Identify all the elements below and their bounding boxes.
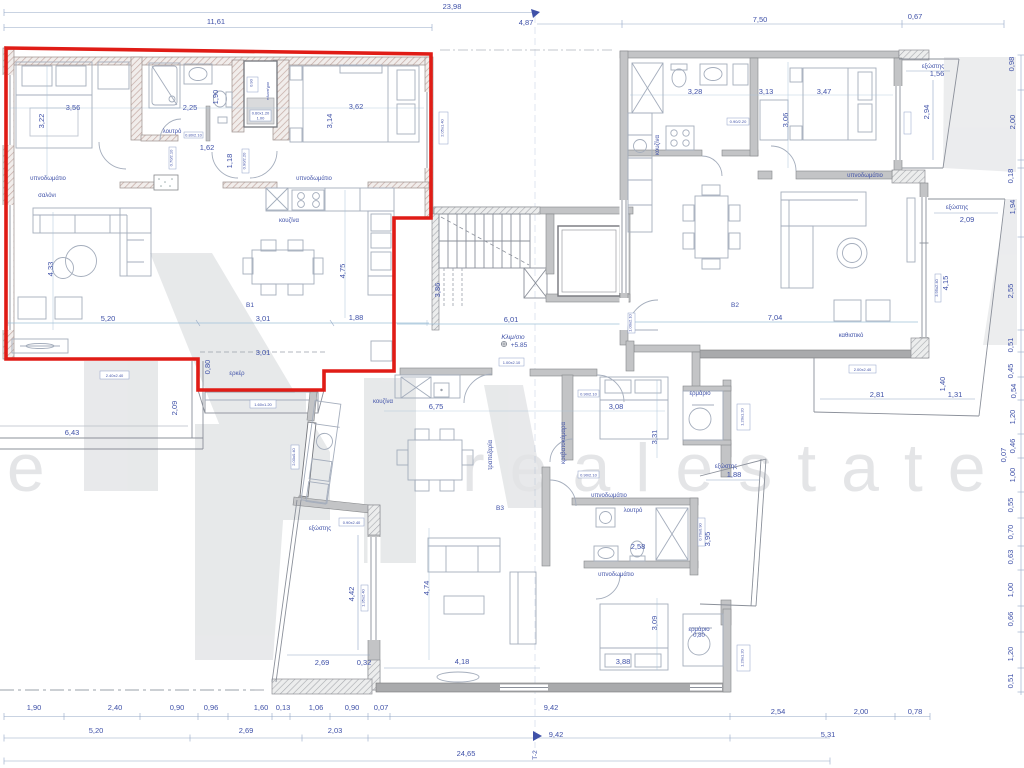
- svg-text:0,54: 0,54: [1009, 384, 1018, 399]
- svg-text:2,81: 2,81: [870, 390, 885, 399]
- svg-text:7,50: 7,50: [753, 15, 768, 24]
- svg-text:3,01: 3,01: [256, 314, 271, 323]
- svg-text:2,00: 2,00: [1008, 115, 1017, 130]
- svg-text:0,80: 0,80: [203, 360, 212, 375]
- svg-text:1.00: 1.00: [257, 116, 266, 121]
- svg-text:1,90: 1,90: [211, 90, 220, 105]
- svg-text:3,14: 3,14: [325, 114, 334, 129]
- svg-text:ερκέρ: ερκέρ: [229, 370, 245, 377]
- svg-text:3,47: 3,47: [817, 87, 832, 96]
- svg-text:3.95x2.40: 3.95x2.40: [934, 278, 939, 296]
- svg-text:4,87: 4,87: [519, 18, 534, 27]
- svg-text:2.40x2.40: 2.40x2.40: [106, 373, 124, 378]
- svg-text:0,07: 0,07: [999, 448, 1008, 463]
- svg-text:2,58: 2,58: [631, 542, 646, 551]
- svg-text:0.80/2.10: 0.80/2.10: [185, 133, 202, 138]
- svg-text:0,32: 0,32: [357, 658, 372, 667]
- svg-text:καθιστικό: καθιστικό: [839, 332, 864, 339]
- svg-text:2,55: 2,55: [1006, 284, 1015, 299]
- svg-text:2,94: 2,94: [922, 105, 931, 120]
- svg-text:3,01: 3,01: [256, 348, 271, 357]
- svg-text:3,62: 3,62: [349, 102, 364, 111]
- svg-text:0,51: 0,51: [1006, 338, 1015, 353]
- svg-text:2,09: 2,09: [170, 401, 179, 416]
- svg-text:2,25: 2,25: [183, 103, 198, 112]
- svg-text:0,51: 0,51: [1006, 674, 1015, 689]
- svg-text:4,74: 4,74: [422, 581, 431, 596]
- svg-text:0,67: 0,67: [908, 12, 923, 21]
- svg-text:ερμάριο: ερμάριο: [688, 626, 710, 633]
- svg-text:T-2: T-2: [532, 750, 539, 760]
- svg-text:1,62: 1,62: [200, 143, 215, 152]
- svg-text:te: te: [0, 430, 70, 506]
- svg-text:B3: B3: [496, 505, 504, 512]
- svg-text:1,06: 1,06: [309, 703, 324, 712]
- svg-text:0,07: 0,07: [374, 703, 389, 712]
- svg-text:1,94: 1,94: [1008, 200, 1017, 215]
- svg-text:3,56: 3,56: [66, 103, 81, 112]
- svg-text:0,90: 0,90: [345, 703, 360, 712]
- svg-text:2,69: 2,69: [315, 658, 330, 667]
- svg-text:2.00x0.40: 2.00x0.40: [291, 447, 296, 465]
- svg-text:λουτρό: λουτρό: [624, 507, 643, 514]
- svg-text:0,63: 0,63: [1006, 550, 1015, 565]
- svg-text:1,88: 1,88: [349, 313, 364, 322]
- svg-text:κουζίνα: κουζίνα: [373, 399, 394, 405]
- svg-text:1.20x1.20: 1.20x1.20: [740, 407, 745, 425]
- svg-text:0.90/2.20: 0.90/2.20: [730, 119, 747, 124]
- svg-text:1.00x2.10: 1.00x2.10: [503, 360, 521, 365]
- svg-text:0.90: 0.90: [249, 78, 254, 87]
- svg-text:3,22: 3,22: [37, 114, 46, 129]
- svg-text:1,40: 1,40: [938, 377, 947, 392]
- svg-text:0.90/2.20: 0.90/2.20: [242, 152, 247, 169]
- svg-text:1.35x2.40: 1.35x2.40: [361, 588, 366, 606]
- svg-text:23,98: 23,98: [443, 2, 462, 11]
- svg-text:3,95: 3,95: [703, 532, 712, 547]
- svg-text:1.60x1.20: 1.60x1.20: [254, 402, 272, 407]
- svg-text:σαλόνι: σαλόνι: [38, 192, 56, 199]
- svg-text:2,40: 2,40: [108, 703, 123, 712]
- svg-text:9,42: 9,42: [549, 730, 564, 739]
- svg-text:3,09: 3,09: [650, 616, 659, 631]
- svg-text:3,31: 3,31: [650, 430, 659, 445]
- svg-text:1,56: 1,56: [930, 69, 945, 78]
- svg-text:λουτρό: λουτρό: [163, 128, 182, 135]
- svg-text:0,45: 0,45: [1006, 364, 1015, 379]
- svg-text:0,55: 0,55: [1006, 498, 1015, 513]
- svg-text:2.00x2.40: 2.00x2.40: [854, 367, 872, 372]
- svg-text:1,88: 1,88: [727, 470, 742, 479]
- svg-text:υπνοδωμάτιο: υπνοδωμάτιο: [598, 571, 634, 578]
- svg-text:0,70: 0,70: [1006, 525, 1015, 540]
- svg-text:0,90: 0,90: [170, 703, 185, 712]
- svg-text:0.90/2.10: 0.90/2.10: [580, 473, 597, 478]
- svg-text:0.70/2.10: 0.70/2.10: [169, 149, 174, 166]
- svg-text:υπνοδωμάτιο: υπνοδωμάτιο: [296, 175, 332, 182]
- svg-text:B2: B2: [731, 302, 739, 309]
- svg-text:+5.85: +5.85: [511, 342, 528, 349]
- svg-text:2,69: 2,69: [239, 726, 254, 735]
- svg-text:1.20x1.20: 1.20x1.20: [740, 648, 745, 666]
- svg-text:2,54: 2,54: [771, 707, 786, 716]
- svg-text:εξώστης: εξώστης: [309, 526, 331, 532]
- svg-text:υπνοδωμάτιο: υπνοδωμάτιο: [591, 492, 627, 499]
- svg-text:3,08: 3,08: [609, 402, 624, 411]
- svg-text:1,31: 1,31: [948, 390, 963, 399]
- svg-text:τραπεζαρία: τραπεζαρία: [488, 439, 494, 470]
- svg-text:24,65: 24,65: [457, 749, 476, 758]
- svg-text:πλυντήριο: πλυντήριο: [265, 81, 270, 100]
- svg-text:2,09: 2,09: [960, 215, 975, 224]
- svg-text:6,01: 6,01: [504, 315, 519, 324]
- svg-text:5,31: 5,31: [821, 730, 836, 739]
- svg-text:Κλιμ/σιο: Κλιμ/σιο: [501, 334, 525, 341]
- svg-text:κουζίνα: κουζίνα: [655, 134, 661, 155]
- svg-text:ερμάριο: ερμάριο: [689, 390, 711, 397]
- svg-text:4,18: 4,18: [455, 657, 470, 666]
- svg-text:1,90: 1,90: [27, 703, 42, 712]
- svg-text:εξώστης: εξώστης: [946, 205, 968, 211]
- svg-text:0,96: 0,96: [204, 703, 219, 712]
- svg-text:1.00x2.10: 1.00x2.10: [628, 313, 633, 331]
- svg-text:1,00: 1,00: [1008, 468, 1017, 483]
- svg-text:0,80: 0,80: [693, 633, 705, 639]
- svg-text:0,46: 0,46: [1008, 439, 1017, 454]
- svg-text:2,00: 2,00: [854, 707, 869, 716]
- svg-text:3,28: 3,28: [688, 87, 703, 96]
- svg-text:7,04: 7,04: [768, 313, 783, 322]
- svg-text:5,20: 5,20: [89, 726, 104, 735]
- svg-text:3,13: 3,13: [759, 87, 774, 96]
- svg-text:κρεβατοκάμαρα: κρεβατοκάμαρα: [560, 422, 567, 464]
- svg-text:1,60: 1,60: [254, 703, 269, 712]
- svg-text:0.70x0.90: 0.70x0.90: [698, 522, 703, 540]
- svg-text:6,43: 6,43: [65, 428, 80, 437]
- svg-text:3,88: 3,88: [616, 657, 631, 666]
- svg-text:1,00: 1,00: [1006, 583, 1015, 598]
- svg-text:4,33: 4,33: [46, 262, 55, 277]
- svg-text:κουζίνα: κουζίνα: [279, 218, 300, 224]
- svg-text:2.05x1.40: 2.05x1.40: [440, 118, 445, 136]
- svg-text:0,18: 0,18: [1006, 169, 1015, 184]
- svg-text:6,75: 6,75: [429, 402, 444, 411]
- svg-text:5,20: 5,20: [101, 314, 116, 323]
- svg-text:3,86: 3,86: [433, 283, 442, 298]
- svg-text:4,75: 4,75: [338, 264, 347, 279]
- svg-text:1,18: 1,18: [225, 154, 234, 169]
- svg-text:0.90/2.10: 0.90/2.10: [580, 392, 597, 397]
- svg-text:0.90x2.40: 0.90x2.40: [343, 520, 361, 525]
- svg-text:υπνοδωμάτιο: υπνοδωμάτιο: [30, 175, 66, 182]
- svg-text:9,42: 9,42: [544, 703, 559, 712]
- svg-text:3,06: 3,06: [781, 113, 790, 128]
- svg-text:0,13: 0,13: [276, 703, 291, 712]
- svg-text:0,98: 0,98: [1007, 57, 1016, 72]
- svg-text:11,61: 11,61: [207, 17, 225, 26]
- svg-text:2,03: 2,03: [328, 726, 343, 735]
- svg-text:υπνοδωμάτιο: υπνοδωμάτιο: [847, 172, 883, 179]
- svg-text:B1: B1: [246, 302, 254, 309]
- svg-text:0,66: 0,66: [1006, 612, 1015, 627]
- svg-text:4,42: 4,42: [347, 587, 356, 602]
- svg-text:1,20: 1,20: [1006, 647, 1015, 662]
- svg-text:0,78: 0,78: [908, 707, 923, 716]
- svg-text:1,20: 1,20: [1008, 410, 1017, 425]
- svg-text:4,15: 4,15: [941, 276, 950, 291]
